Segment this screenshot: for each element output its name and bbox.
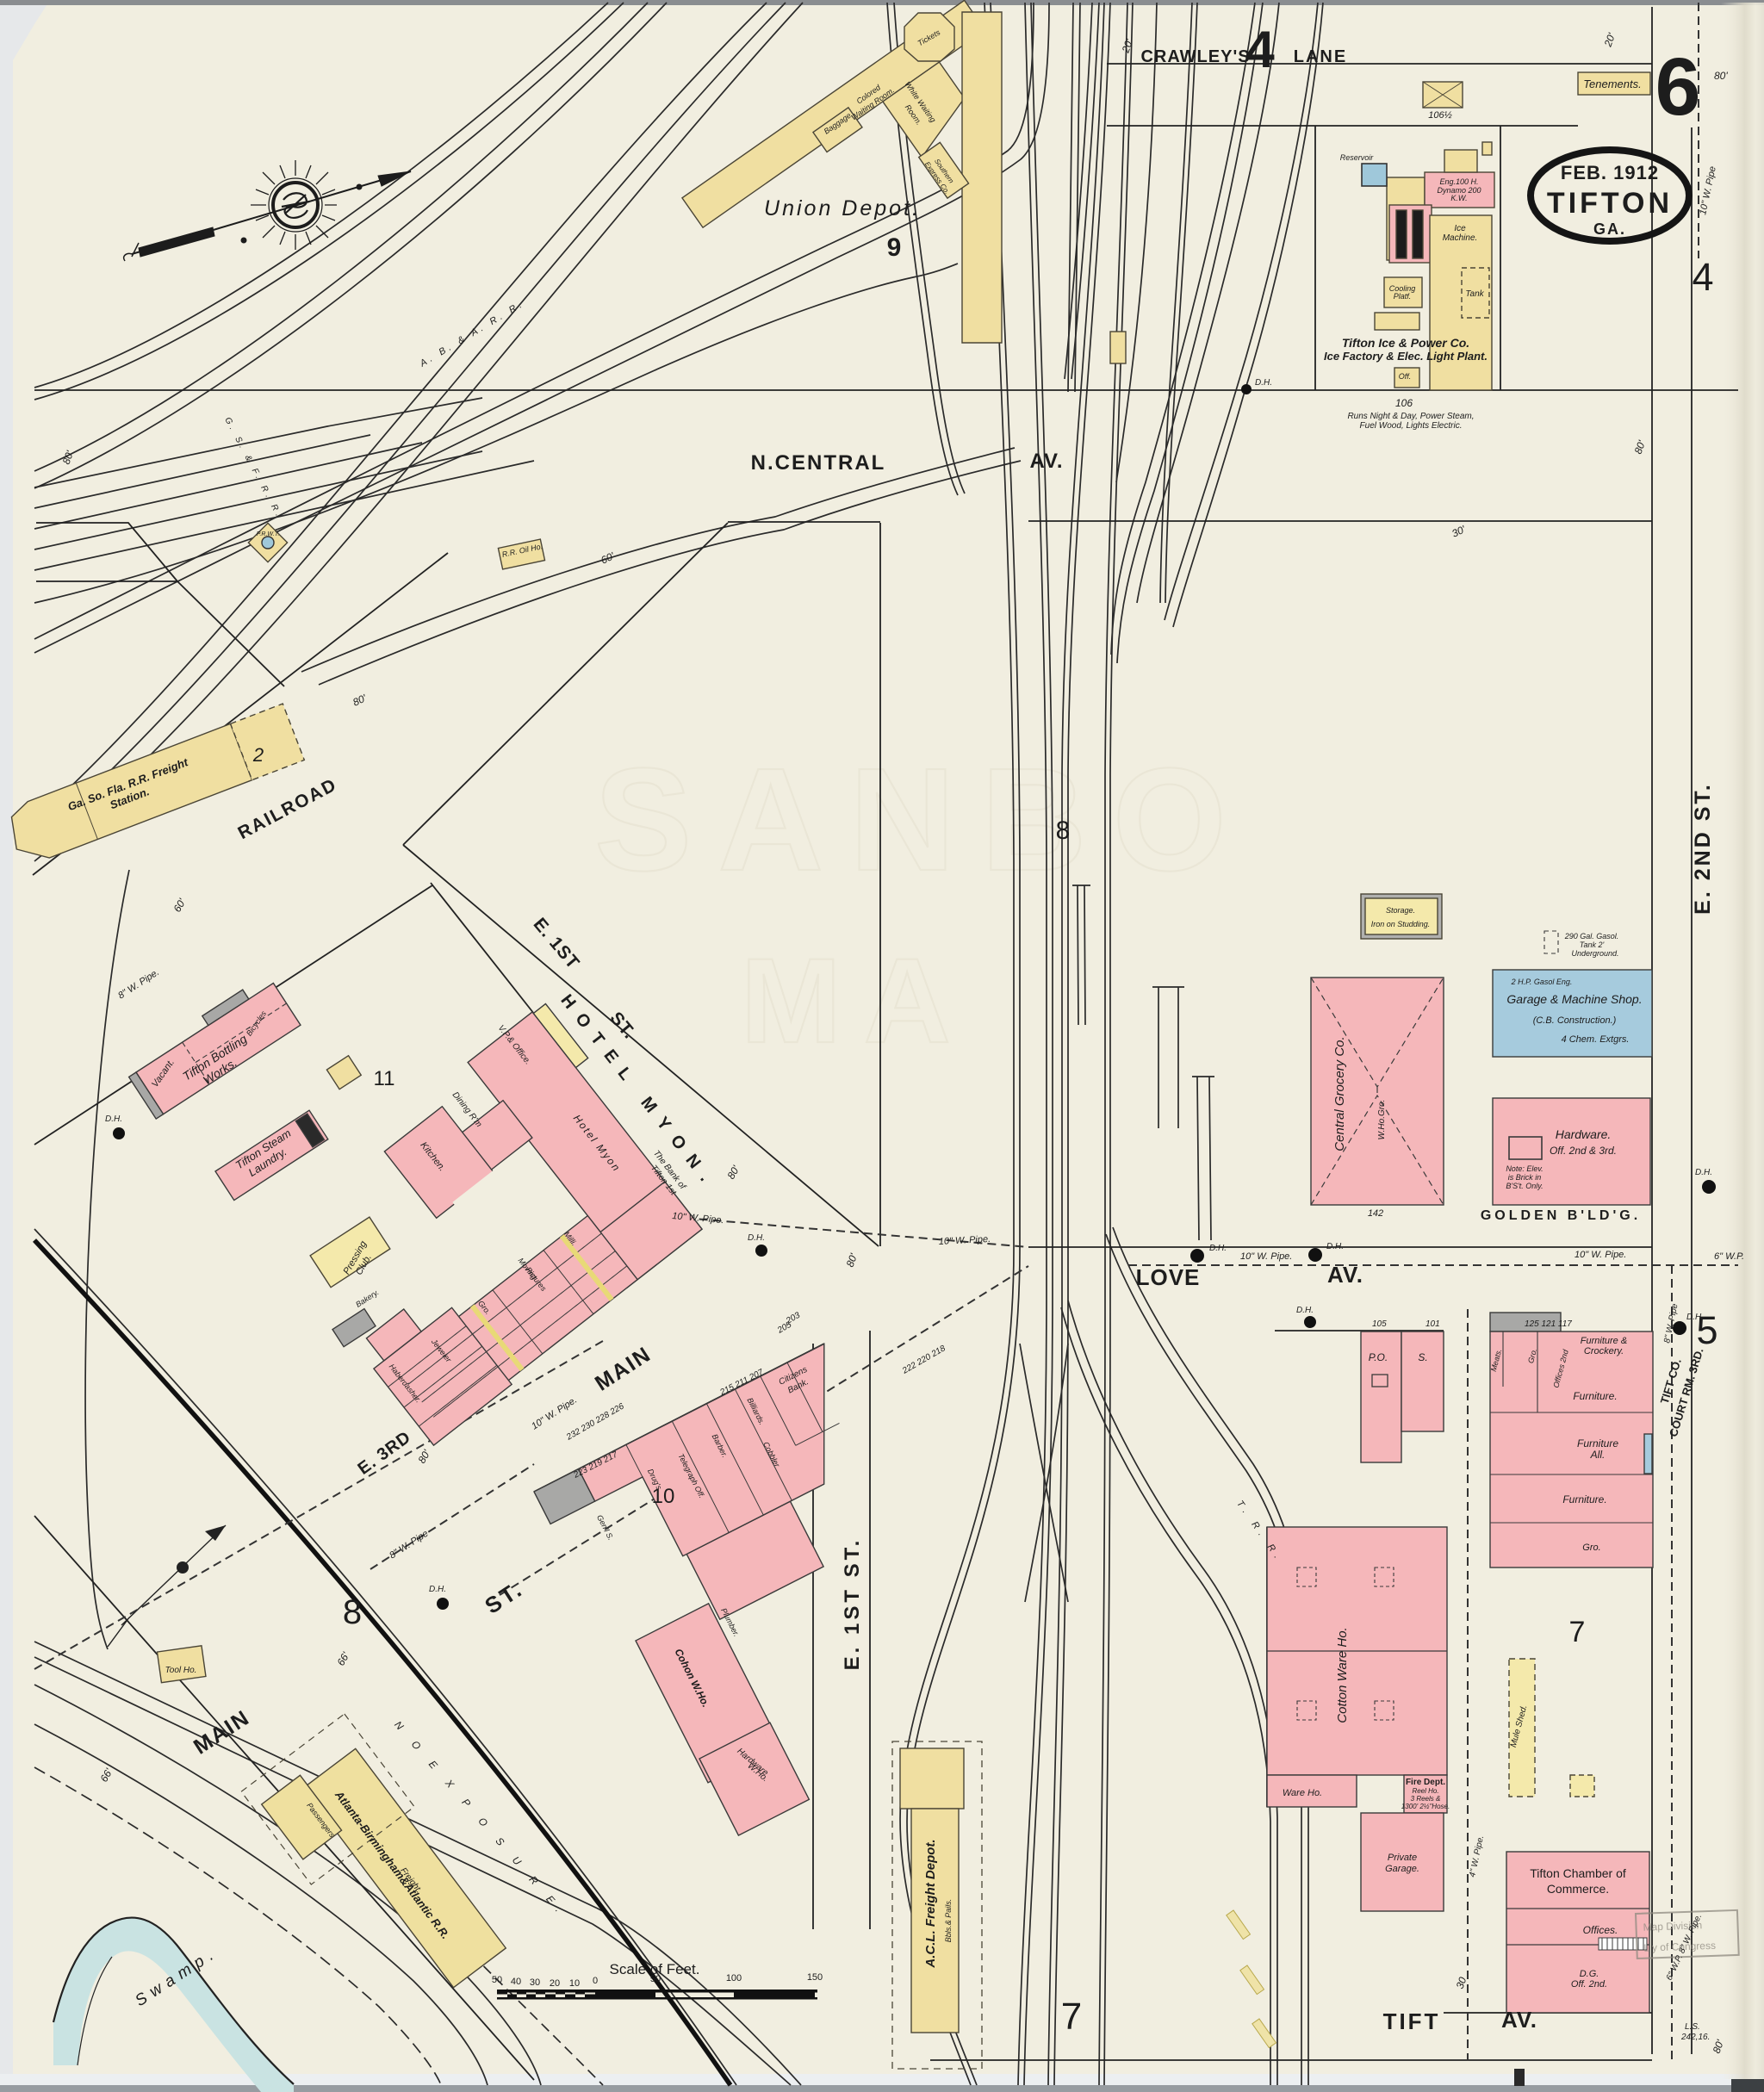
svg-text:6: 6	[1655, 41, 1701, 133]
svg-text:K.W.: K.W.	[1450, 194, 1467, 202]
svg-text:Central Grocery Co.: Central Grocery Co.	[1332, 1036, 1347, 1151]
svg-text:FEB. 1912: FEB. 1912	[1561, 162, 1659, 183]
svg-text:4: 4	[1692, 255, 1713, 299]
svg-text:290 Gal. Gasol.: 290 Gal. Gasol.	[1564, 932, 1619, 940]
svg-text:P.R.W.T.: P.R.W.T.	[257, 531, 280, 537]
svg-text:30: 30	[530, 1977, 540, 1988]
svg-text:0: 0	[593, 1976, 598, 1986]
svg-text:Off. 2nd.: Off. 2nd.	[1571, 1979, 1607, 1990]
svg-text:W.Ho.Gro.: W.Ho.Gro.	[1377, 1100, 1387, 1140]
svg-text:B'S't. Only.: B'S't. Only.	[1506, 1182, 1543, 1190]
svg-text:Crockery.: Crockery.	[1584, 1346, 1624, 1356]
svg-text:Platf.: Platf.	[1394, 292, 1412, 301]
svg-text:Tifton Ice & Power Co.: Tifton Ice & Power Co.	[1342, 336, 1469, 350]
svg-text:AV.: AV.	[1327, 1262, 1363, 1288]
svg-text:10" W. Pipe.: 10" W. Pipe.	[1575, 1250, 1626, 1260]
svg-text:AV.: AV.	[1029, 450, 1063, 473]
svg-text:L.S.: L.S.	[1685, 2022, 1700, 2032]
svg-text:9: 9	[887, 233, 902, 262]
svg-text:Hardware.: Hardware.	[1556, 1127, 1612, 1141]
svg-text:D.H.: D.H.	[1326, 1242, 1344, 1251]
svg-text:(C.B. Construction.): (C.B. Construction.)	[1533, 1015, 1617, 1026]
svg-text:20: 20	[550, 1978, 560, 1989]
svg-text:2: 2	[252, 744, 264, 766]
svg-text:80': 80'	[1714, 70, 1728, 82]
svg-text:Commerce.: Commerce.	[1547, 1882, 1609, 1896]
svg-text:LANE: LANE	[1294, 47, 1347, 66]
svg-text:Machine.: Machine.	[1443, 233, 1478, 243]
svg-text:4 Chem. Extgrs.: 4 Chem. Extgrs.	[1562, 1034, 1630, 1045]
svg-text:Garage & Machine Shop.: Garage & Machine Shop.	[1506, 992, 1642, 1006]
svg-text:Storage.: Storage.	[1386, 906, 1415, 915]
svg-text:LOVE: LOVE	[1136, 1264, 1201, 1290]
svg-text:Off.: Off.	[1399, 372, 1412, 381]
svg-text:Furniture: Furniture	[1577, 1437, 1618, 1450]
svg-text:106½: 106½	[1428, 110, 1452, 121]
svg-text:4: 4	[1245, 21, 1275, 78]
svg-text:Furniture.: Furniture.	[1562, 1493, 1606, 1505]
svg-text:142: 142	[1368, 1208, 1383, 1219]
svg-text:D.H.: D.H.	[748, 1233, 765, 1243]
svg-text:TIFTON: TIFTON	[1547, 187, 1673, 220]
svg-text:A.C.L. Freight Depot.: A.C.L. Freight Depot.	[923, 1839, 938, 1968]
svg-text:D.H.: D.H.	[105, 1114, 122, 1124]
svg-text:Iron on Studding.: Iron on Studding.	[1371, 920, 1431, 928]
svg-text:101: 101	[1425, 1319, 1440, 1329]
svg-text:D.G.: D.G.	[1580, 1969, 1599, 1979]
svg-text:D.H.: D.H.	[1686, 1313, 1704, 1322]
svg-text:Tank 2': Tank 2'	[1580, 940, 1605, 949]
svg-text:Reservoir: Reservoir	[1340, 153, 1375, 162]
svg-text:Tenements.: Tenements.	[1583, 78, 1641, 90]
svg-text:CRAWLEY'S: CRAWLEY'S	[1140, 47, 1250, 66]
svg-text:P.O.: P.O.	[1369, 1351, 1388, 1363]
svg-text:SANBO: SANBO	[594, 738, 1252, 902]
svg-text:Ware Ho.: Ware Ho.	[1283, 1788, 1322, 1798]
svg-text:Cotton Ware Ho.: Cotton Ware Ho.	[1335, 1627, 1350, 1723]
svg-text:Underground.: Underground.	[1571, 949, 1618, 958]
svg-text:125 121 117: 125 121 117	[1525, 1319, 1572, 1329]
svg-text:Tifton Chamber of: Tifton Chamber of	[1530, 1866, 1626, 1880]
svg-text:D.H.: D.H.	[429, 1585, 446, 1594]
svg-text:7: 7	[1569, 1616, 1586, 1648]
svg-text:2 H.P. Gasol Eng.: 2 H.P. Gasol Eng.	[1511, 978, 1573, 986]
svg-text:Off. 2nd & 3rd.: Off. 2nd & 3rd.	[1550, 1145, 1617, 1157]
svg-text:MA: MA	[741, 933, 973, 1068]
svg-text:Fire Dept.: Fire Dept.	[1406, 1778, 1445, 1787]
svg-text:10" W. Pipe.: 10" W. Pipe.	[1240, 1251, 1292, 1262]
svg-text:All.: All.	[1590, 1449, 1606, 1461]
svg-text:Fuel Wood, Lights Electric.: Fuel Wood, Lights Electric.	[1360, 421, 1463, 431]
svg-text:GA.: GA.	[1593, 220, 1626, 238]
svg-text:GOLDEN B'LD'G.: GOLDEN B'LD'G.	[1481, 1208, 1641, 1223]
svg-text:D.H.: D.H.	[1695, 1168, 1712, 1177]
svg-text:6" W.P.: 6" W.P.	[1714, 1251, 1744, 1262]
svg-text:3 Reels &: 3 Reels &	[1411, 1795, 1441, 1803]
svg-text:Ice Factory & Elec. Light Plan: Ice Factory & Elec. Light Plant.	[1324, 350, 1488, 363]
svg-text:N.CENTRAL: N.CENTRAL	[751, 451, 886, 475]
svg-text:E. 1ST ST.: E. 1ST ST.	[841, 1537, 864, 1671]
svg-text:Reel Ho.: Reel Ho.	[1412, 1787, 1438, 1795]
svg-text:Union Depot.: Union Depot.	[764, 196, 921, 220]
svg-text:1300' 2½"Hose.: 1300' 2½"Hose.	[1401, 1803, 1450, 1810]
svg-text:40: 40	[511, 1977, 521, 1987]
svg-text:TIFT: TIFT	[1383, 2008, 1441, 2034]
svg-text:Private: Private	[1388, 1853, 1417, 1863]
svg-text:106: 106	[1395, 397, 1413, 409]
svg-text:Tank: Tank	[1465, 289, 1484, 299]
svg-text:Ice: Ice	[1454, 224, 1466, 233]
svg-text:50: 50	[492, 1975, 502, 1985]
svg-text:Note: Elev.: Note: Elev.	[1506, 1164, 1543, 1173]
svg-text:Offices.: Offices.	[1583, 1924, 1618, 1936]
svg-text:D.H.: D.H.	[1296, 1306, 1314, 1315]
svg-text:100: 100	[726, 1973, 742, 1983]
svg-text:D.H.: D.H.	[1209, 1244, 1227, 1253]
svg-text:150: 150	[807, 1972, 823, 1983]
svg-text:Tool Ho.: Tool Ho.	[165, 1666, 197, 1675]
svg-text:10: 10	[569, 1978, 580, 1989]
svg-text:105: 105	[1372, 1319, 1387, 1329]
svg-text:50: 50	[650, 1974, 661, 1984]
svg-text:E. 2ND ST.: E. 2ND ST.	[1691, 782, 1715, 915]
svg-text:S.: S.	[1418, 1351, 1427, 1363]
svg-text:Eng.100 H.: Eng.100 H.	[1439, 177, 1478, 186]
svg-text:D.H.: D.H.	[1255, 378, 1272, 388]
svg-text:Runs Night & Day, Power Steam,: Runs Night & Day, Power Steam,	[1347, 412, 1474, 421]
svg-text:AV.: AV.	[1501, 2007, 1537, 2033]
svg-text:is Brick in: is Brick in	[1508, 1173, 1542, 1182]
svg-text:7: 7	[1061, 1996, 1082, 2038]
svg-text:242,16.: 242,16.	[1680, 2033, 1710, 2042]
svg-text:8: 8	[343, 1593, 362, 1631]
svg-text:Bbls.& Pails.: Bbls.& Pails.	[944, 1899, 953, 1943]
svg-text:Garage.: Garage.	[1385, 1864, 1419, 1874]
svg-text:8: 8	[1056, 816, 1071, 845]
svg-text:11: 11	[374, 1067, 395, 1090]
svg-text:Gro.: Gro.	[1582, 1543, 1600, 1553]
svg-text:Furniture &: Furniture &	[1581, 1336, 1627, 1346]
svg-text:Furniture.: Furniture.	[1573, 1390, 1617, 1402]
